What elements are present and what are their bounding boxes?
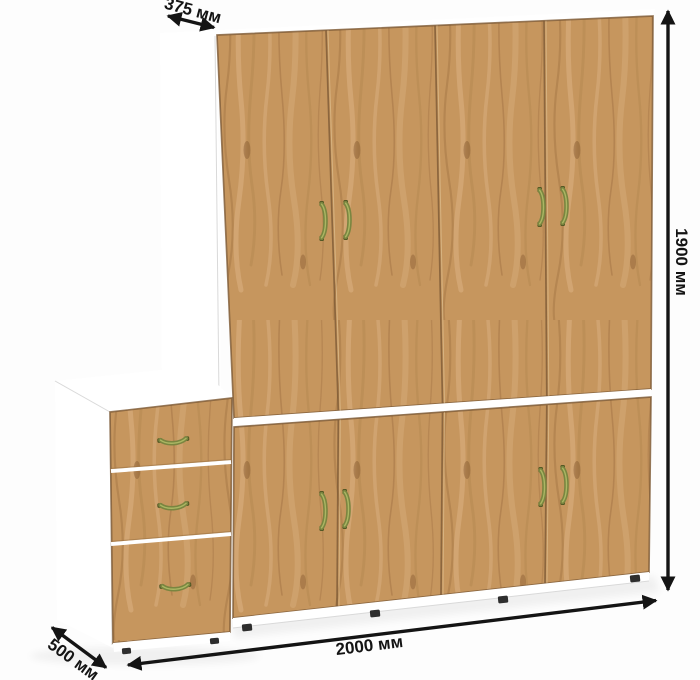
- drawer-unit: [55, 366, 232, 654]
- drawer-unit-left-side: [55, 381, 113, 648]
- wardrobe-left-side-panel: [160, 33, 221, 398]
- dimension-label-height: 1900 мм: [672, 228, 691, 296]
- drawer-fronts: [110, 398, 232, 643]
- furniture-scene: 375 мм 1900 мм 2000 мм 500 мм: [0, 0, 700, 680]
- wardrobe-upper-doors: [217, 16, 653, 418]
- product-dimension-diagram: 375 мм 1900 мм 2000 мм 500 мм: [0, 0, 700, 680]
- wardrobe: [160, 9, 655, 632]
- dimension-label-width: 2000 мм: [335, 632, 405, 659]
